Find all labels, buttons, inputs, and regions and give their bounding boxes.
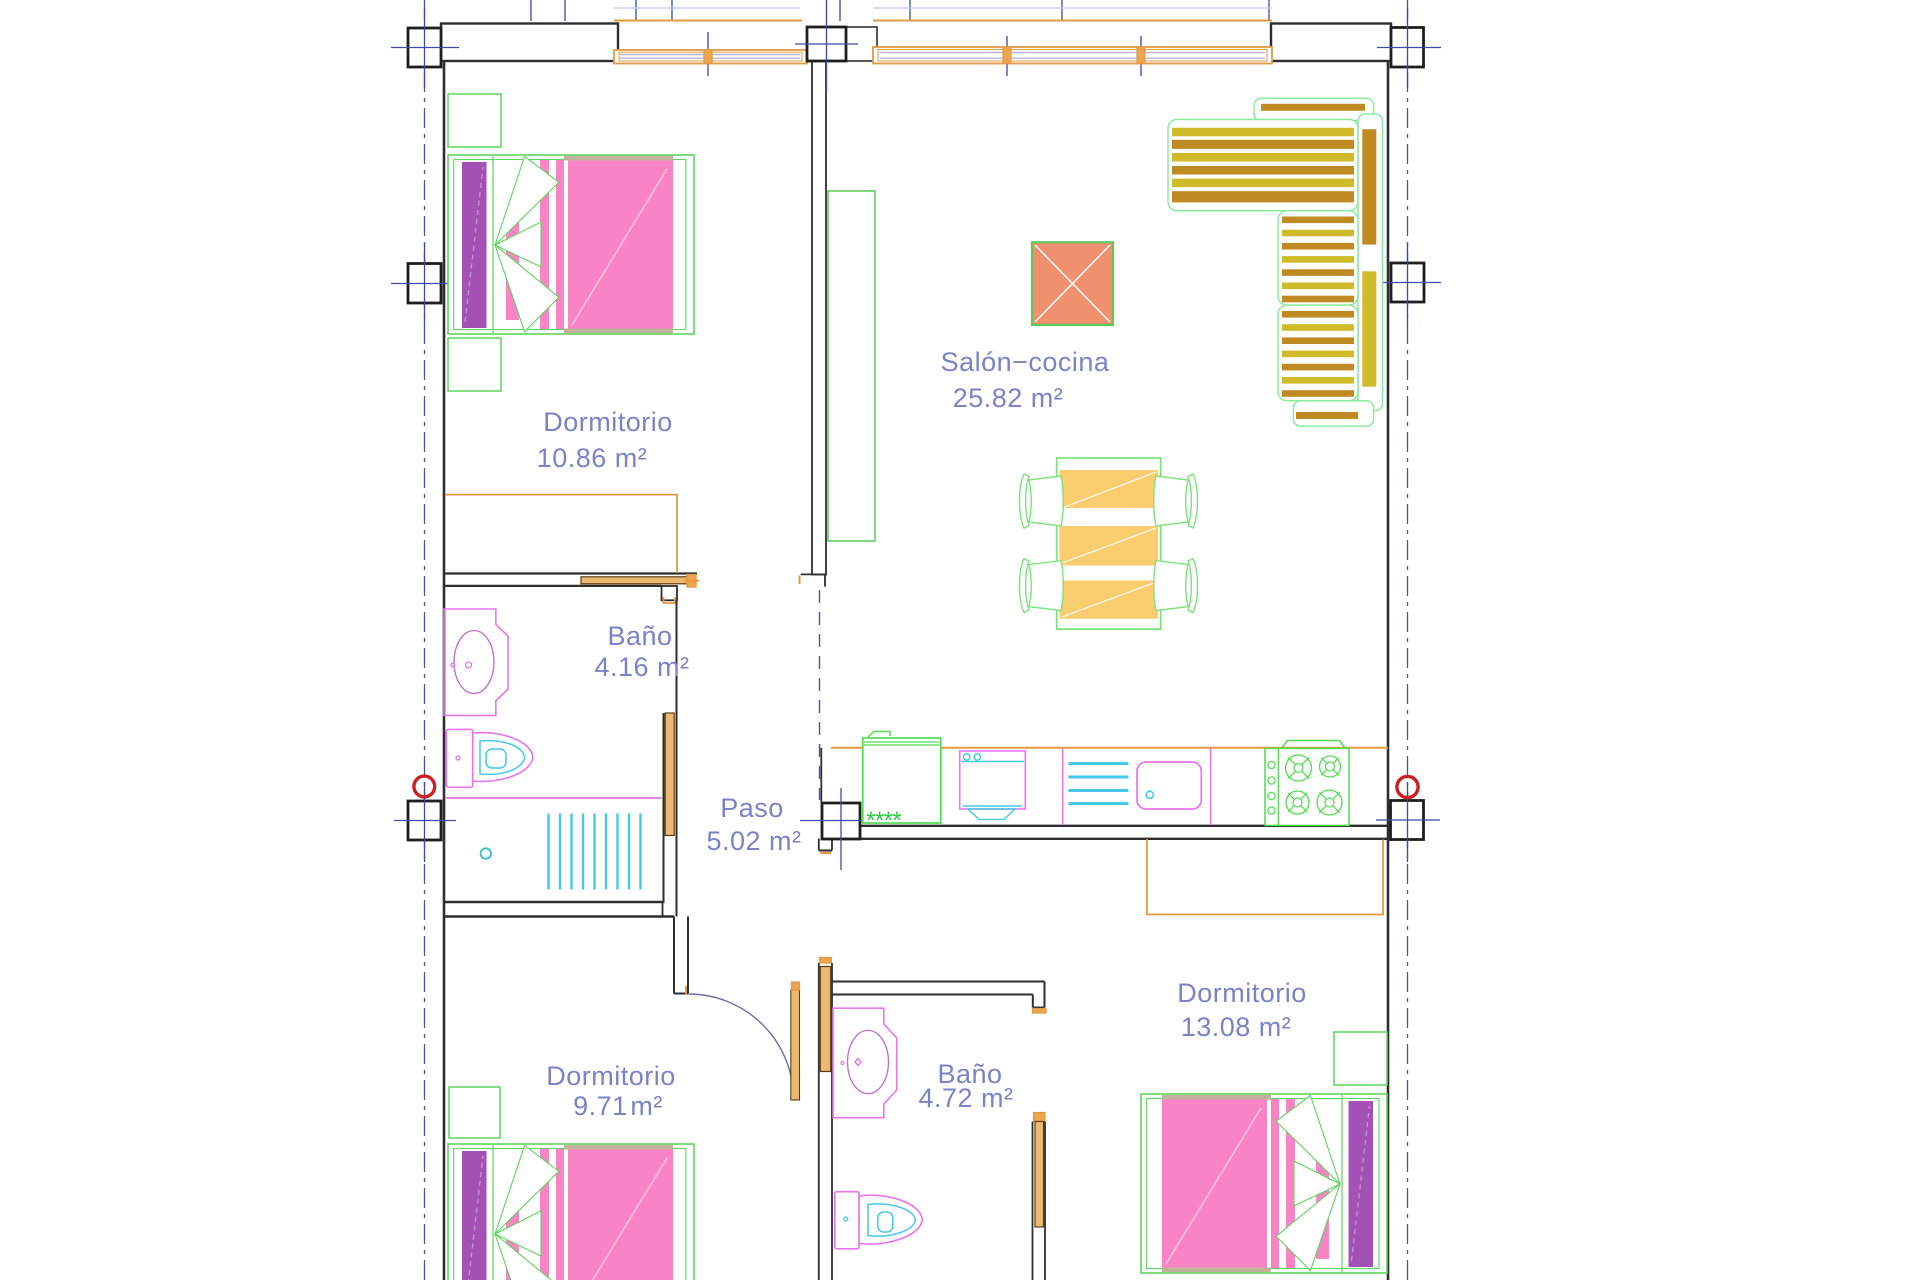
svg-text:Paso: Paso [720, 793, 784, 823]
svg-text:25.82 m²: 25.82 m² [953, 383, 1064, 413]
svg-text:5.02 m²: 5.02 m² [706, 826, 801, 856]
svg-text:Dormitorio: Dormitorio [543, 407, 673, 437]
svg-text:13.08 m²: 13.08 m² [1181, 1012, 1292, 1042]
svg-text:4.16 m²: 4.16 m² [594, 652, 689, 682]
svg-text:Dormitorio: Dormitorio [546, 1061, 676, 1091]
svg-text:10.86 m²: 10.86 m² [537, 443, 648, 473]
svg-text:4.72 m²: 4.72 m² [918, 1083, 1013, 1113]
svg-text:****: **** [866, 807, 902, 835]
svg-text:Baño: Baño [607, 621, 672, 651]
svg-text:Dormitorio: Dormitorio [1177, 978, 1307, 1008]
svg-text:9.71 m²: 9.71 m² [573, 1091, 663, 1121]
svg-text:Salón−cocina: Salón−cocina [941, 347, 1110, 377]
